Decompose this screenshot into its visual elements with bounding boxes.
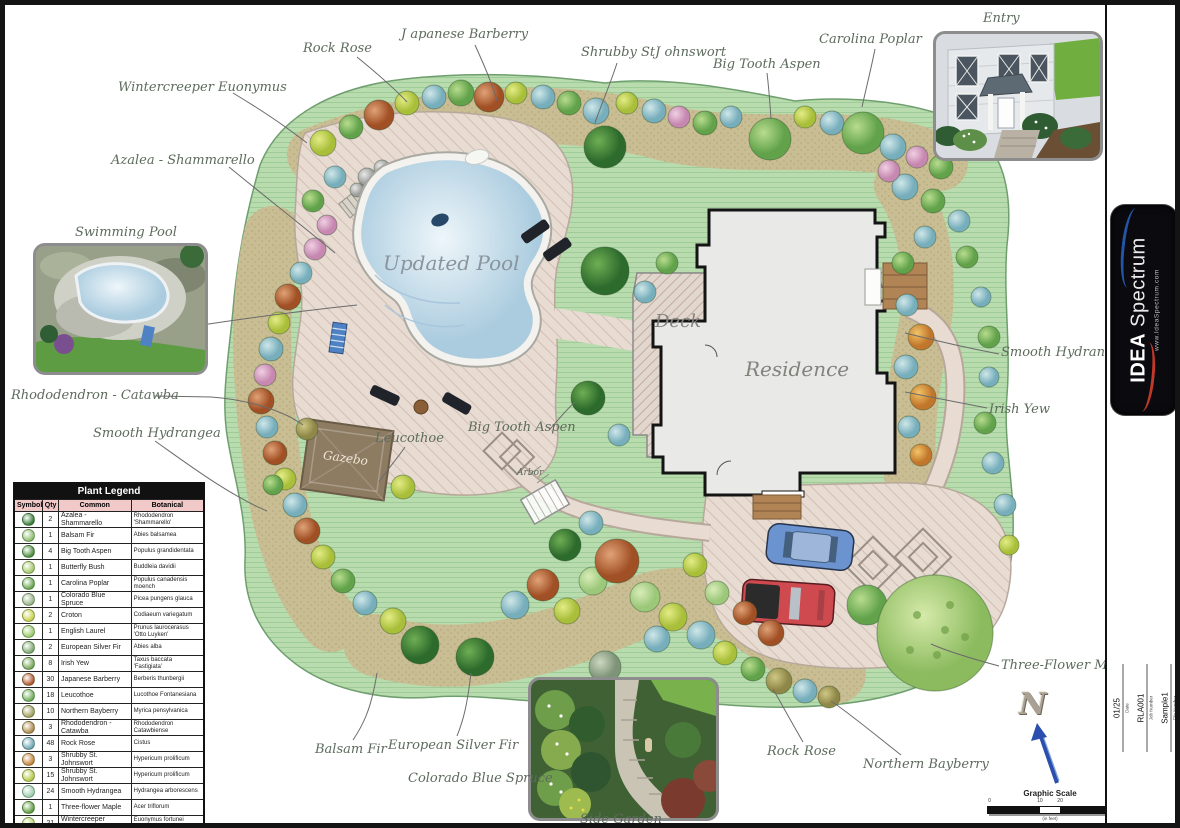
plant-qty: 3	[42, 752, 58, 768]
graphic-scale-title: Graphic Scale	[987, 789, 1113, 798]
legend-row: 1Butterfly BushBuddleia davidii	[14, 560, 204, 576]
scale-bar	[987, 806, 1113, 814]
date-value: 01/25	[1113, 664, 1124, 752]
legend-col-common: Common	[58, 500, 131, 512]
legend-col-botanical: Botanical	[131, 500, 204, 512]
plant-symbol-icon	[22, 817, 35, 828]
legend-row: 4Big Tooth AspenPopulus grandidentata	[14, 544, 204, 560]
plant-qty: 8	[42, 656, 58, 672]
plant-qty: 15	[42, 768, 58, 784]
plant-qty: 1	[42, 560, 58, 576]
plant-botanical-name: Hypericum prolificum	[131, 768, 204, 784]
plant-symbol-icon	[22, 545, 35, 558]
plant-common-name: Big Tooth Aspen	[58, 544, 131, 560]
north-arrow	[1031, 723, 1059, 783]
date-cell: 01/25 Date	[1109, 661, 1133, 755]
label-azalea-shammarello: Azalea - Shammarello	[111, 153, 255, 168]
legend-row: 3Shrubby St. JohnswortHypericum prolific…	[14, 752, 204, 768]
plant-symbol-icon	[22, 577, 35, 590]
plant-qty: 1	[42, 528, 58, 544]
plant-common-name: Northern Bayberry	[58, 704, 131, 720]
plant-botanical-name: Cistus	[131, 736, 204, 752]
plant-common-name: Wintercreeper Euonymus	[58, 816, 131, 828]
plant-botanical-name: Acer triflorum	[131, 800, 204, 816]
plant-qty: 48	[42, 736, 58, 752]
legend-row: 1Colorado Blue SprucePicea pungens glauc…	[14, 592, 204, 608]
legend-row: 10Northern BayberryMyrica pensylvanica	[14, 704, 204, 720]
label-arbor: Arbor	[517, 468, 543, 478]
plant-botanical-name: Prunus laurocerasus 'Otto Luyken'	[131, 624, 204, 640]
plant-common-name: Croton	[58, 608, 131, 624]
plant-symbol-icon	[22, 609, 35, 622]
job-number-cell: RLA001 Job Number	[1133, 661, 1157, 755]
side-garden-photo	[528, 677, 719, 821]
legend-row: 2European Silver FirAbies alba	[14, 640, 204, 656]
plant-botanical-name: Populus canadensis moench	[131, 576, 204, 592]
plant-qty: 2	[42, 512, 58, 528]
date-label: Date	[1124, 664, 1130, 752]
plant-common-name: Three-flower Maple	[58, 800, 131, 816]
plant-botanical-name: Picea pungens glauca	[131, 592, 204, 608]
plant-botanical-name: Buddleia davidii	[131, 560, 204, 576]
label-big-tooth-aspen-top: Big Tooth Aspen	[713, 57, 821, 72]
plant-common-name: Rhododendron - Catawba	[58, 720, 131, 736]
plant-botanical-name: Rhododendron 'Shammarello'	[131, 512, 204, 528]
plant-botanical-name: Abies alba	[131, 640, 204, 656]
plant-botanical-name: Rhododendron Catawbiense	[131, 720, 204, 736]
plant-symbol-icon	[22, 529, 35, 542]
plant-common-name: Colorado Blue Spruce	[58, 592, 131, 608]
plant-symbol-icon	[22, 705, 35, 718]
label-colorado-blue-spruce: Colorado Blue Spruce	[408, 771, 553, 786]
plant-botanical-name: Taxus baccata 'Fastigiata'	[131, 656, 204, 672]
patio-deck-walk	[553, 323, 641, 337]
plant-common-name: Balsam Fir	[58, 528, 131, 544]
label-rhododendron-catawba: Rhododendron - Catawba	[11, 388, 179, 403]
scale-tick-0: 0	[988, 798, 991, 804]
plant-common-name: Japanese Barberry	[58, 672, 131, 688]
plant-common-name: English Laurel	[58, 624, 131, 640]
label-rock-rose-bottom: Rock Rose	[767, 744, 836, 759]
label-carolina-poplar: Carolina Poplar	[819, 32, 922, 47]
graphic-scale: Graphic Scale 0 10 20 40 (in feet)	[987, 789, 1113, 821]
plant-common-name: Leucothoe	[58, 688, 131, 704]
plant-common-name: Carolina Poplar	[58, 576, 131, 592]
legend-row: 3Rhododendron - CatawbaRhododendron Cata…	[14, 720, 204, 736]
legend-row: 15Shrubby St. JohnswortHypericum prolifi…	[14, 768, 204, 784]
plant-qty: 1	[42, 576, 58, 592]
plant-botanical-name: Hypericum prolificum	[131, 752, 204, 768]
legend-row: 1Balsam FirAbies balsamea	[14, 528, 204, 544]
plant-symbol-icon	[22, 721, 35, 734]
plant-common-name: Butterfly Bush	[58, 560, 131, 576]
sheet: .p{stroke:rgba(35,70,35,.4);stroke-width…	[0, 0, 1180, 828]
entry-photo	[933, 31, 1103, 161]
plant-common-name: Shrubby St. Johnswort	[58, 768, 131, 784]
plant-qty: 2	[42, 640, 58, 656]
legend-row: 24Smooth HydrangeaHydrangea arborescens	[14, 784, 204, 800]
label-deck: Deck	[655, 311, 701, 332]
file-number-label: File Number	[1172, 664, 1178, 752]
scale-tick-2: 20	[1057, 798, 1063, 804]
legend-col-qty: Qty	[42, 500, 58, 512]
plant-botanical-name: Codiaeum variegatum	[131, 608, 204, 624]
plant-common-name: Rock Rose	[58, 736, 131, 752]
legend-row: 1Carolina PoplarPopulus canadensis moenc…	[14, 576, 204, 592]
idea-spectrum-logo: IDEA Spectrum www.IdeaSpectrum.com	[1111, 205, 1177, 415]
label-japanese-barberry: J apanese Barberry	[401, 27, 528, 42]
plant-botanical-name: Berberis thunbergii	[131, 672, 204, 688]
plant-common-name: European Silver Fir	[58, 640, 131, 656]
plant-symbol-icon	[22, 625, 35, 638]
job-number-label: Job Number	[1148, 664, 1154, 752]
label-big-tooth-aspen-mid: Big Tooth Aspen	[468, 420, 576, 435]
plant-qty: 18	[42, 688, 58, 704]
plant-qty: 3	[42, 720, 58, 736]
plant-qty: 1	[42, 624, 58, 640]
legend-row: 21Wintercreeper EuonymusEuonymus fortune…	[14, 816, 204, 828]
legend-row: 2CrotonCodiaeum variegatum	[14, 608, 204, 624]
plant-symbol-icon	[22, 561, 35, 574]
plant-symbol-icon	[22, 689, 35, 702]
logo-url: www.IdeaSpectrum.com	[1154, 212, 1161, 408]
plant-symbol-icon	[22, 737, 35, 750]
plant-common-name: Smooth Hydrangea	[58, 784, 131, 800]
legend-row: 1English LaurelPrunus laurocerasus 'Otto…	[14, 624, 204, 640]
label-wintercreeper-euonymus: Wintercreeper Euonymus	[118, 80, 287, 95]
legend-row: 2Azalea - ShammarelloRhododendron 'Shamm…	[14, 512, 204, 528]
legend-title: Plant Legend	[14, 483, 204, 500]
label-european-silver-fir: European Silver Fir	[388, 738, 518, 753]
plant-qty: 2	[42, 608, 58, 624]
plant-symbol-icon	[22, 657, 35, 670]
plant-common-name: Azalea - Shammarello	[58, 512, 131, 528]
label-northern-bayberry: Northern Bayberry	[863, 757, 989, 772]
scale-tick-1: 10	[1037, 798, 1043, 804]
legend-row: 1Three-flower MapleAcer triflorum	[14, 800, 204, 816]
label-leucothoe: Leucothoe	[375, 431, 444, 446]
label-side-garden: Side Garden	[580, 812, 662, 827]
plant-symbol-icon	[22, 785, 35, 798]
plant-symbol-icon	[22, 641, 35, 654]
scale-units: (in feet)	[987, 816, 1113, 821]
car-blue	[765, 523, 855, 572]
plant-symbol-icon	[22, 769, 35, 782]
plant-symbol-icon	[22, 801, 35, 814]
swimming-pool-photo	[33, 243, 208, 375]
plant-qty: 1	[42, 800, 58, 816]
plant-qty: 1	[42, 592, 58, 608]
label-shrubby-st-johnswort: Shrubby StJ ohnswort	[581, 45, 726, 60]
label-swimming-pool: Swimming Pool	[75, 225, 177, 240]
plant-symbol-icon	[22, 753, 35, 766]
label-residence: Residence	[745, 357, 849, 381]
plant-common-name: Irish Yew	[58, 656, 131, 672]
legend-col-symbol: Symbol	[14, 500, 42, 512]
label-balsam-fir: Balsam Fir	[315, 742, 387, 757]
label-smooth-hydrangea-left: Smooth Hydrangea	[93, 426, 221, 441]
label-entry: Entry	[983, 11, 1020, 26]
plant-legend-table: Plant Legend Symbol Qty Common Botanical…	[13, 482, 205, 828]
plant-qty: 10	[42, 704, 58, 720]
plant-botanical-name: Abies balsamea	[131, 528, 204, 544]
plant-symbol-icon	[22, 513, 35, 526]
legend-row: 30Japanese BarberryBerberis thunbergii	[14, 672, 204, 688]
plant-common-name: Shrubby St. Johnswort	[58, 752, 131, 768]
plant-qty: 21	[42, 816, 58, 828]
north-label: N	[1019, 687, 1046, 722]
plant-botanical-name: Myrica pensylvanica	[131, 704, 204, 720]
plant-qty: 4	[42, 544, 58, 560]
label-irish-yew: Irish Yew	[989, 402, 1050, 417]
plant-botanical-name: Hydrangea arborescens	[131, 784, 204, 800]
job-number-value: RLA001	[1137, 664, 1148, 752]
label-updated-pool: Updated Pool	[383, 251, 520, 275]
label-rock-rose-top: Rock Rose	[303, 41, 372, 56]
file-number-value: Sample1	[1161, 664, 1172, 752]
plant-symbol-icon	[22, 673, 35, 686]
rear-porch	[753, 495, 801, 519]
plant-qty: 24	[42, 784, 58, 800]
file-number-cell: Sample1 File Number	[1157, 661, 1180, 755]
plant-botanical-name: Populus grandidentata	[131, 544, 204, 560]
plant-qty: 30	[42, 672, 58, 688]
plant-botanical-name: Euonymus fortunei 'Emerald n Gold'	[131, 816, 204, 828]
legend-row: 18LeucothoeLucothoe Fontanesiana	[14, 688, 204, 704]
plant-symbol-icon	[22, 593, 35, 606]
legend-row: 8Irish YewTaxus baccata 'Fastigiata'	[14, 656, 204, 672]
legend-row: 48Rock RoseCistus	[14, 736, 204, 752]
plant-botanical-name: Lucothoe Fontanesiana	[131, 688, 204, 704]
